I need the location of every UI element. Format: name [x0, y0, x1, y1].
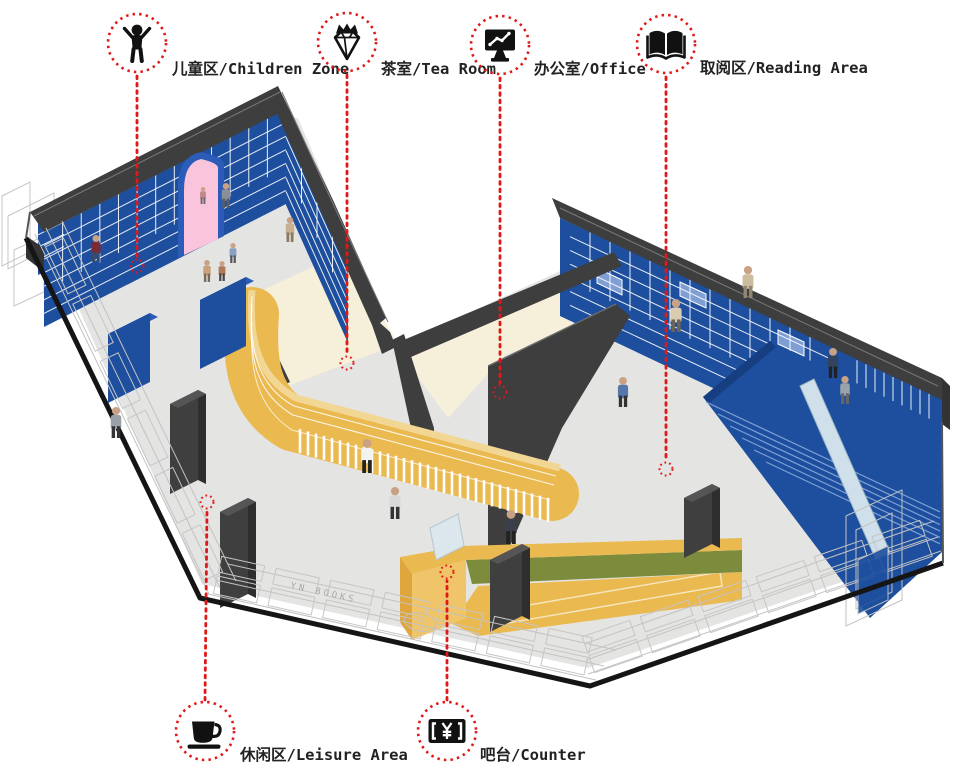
legend-label: 取阅区/Reading Area — [700, 58, 868, 77]
legend-label: 儿童区/Children Zone — [171, 59, 349, 78]
cup-icon — [188, 722, 221, 749]
legend-label: 茶室/Tea Room — [381, 59, 496, 78]
book-icon — [648, 31, 685, 59]
legend-dotted-circle — [637, 15, 695, 73]
legend-label: 吧台/Counter — [480, 745, 586, 764]
building-drawing: YN BOOKS — [2, 76, 950, 686]
gem-icon — [335, 24, 359, 60]
column — [220, 498, 256, 608]
legend-label: 休闲区/Leisure Area — [239, 745, 408, 764]
diagram-svg: YN BOOKS 儿童区/Children Zone 茶室/Tea Room — [0, 0, 960, 771]
column — [170, 390, 206, 494]
monitor-icon — [485, 30, 515, 62]
person-figure — [111, 407, 122, 438]
legend-label: 办公室/Office — [534, 59, 646, 78]
axonometric-floor-plan-diagram: YN BOOKS 儿童区/Children Zone 茶室/Tea Room — [0, 0, 960, 771]
yen-icon — [429, 719, 466, 743]
child-icon — [125, 25, 150, 61]
